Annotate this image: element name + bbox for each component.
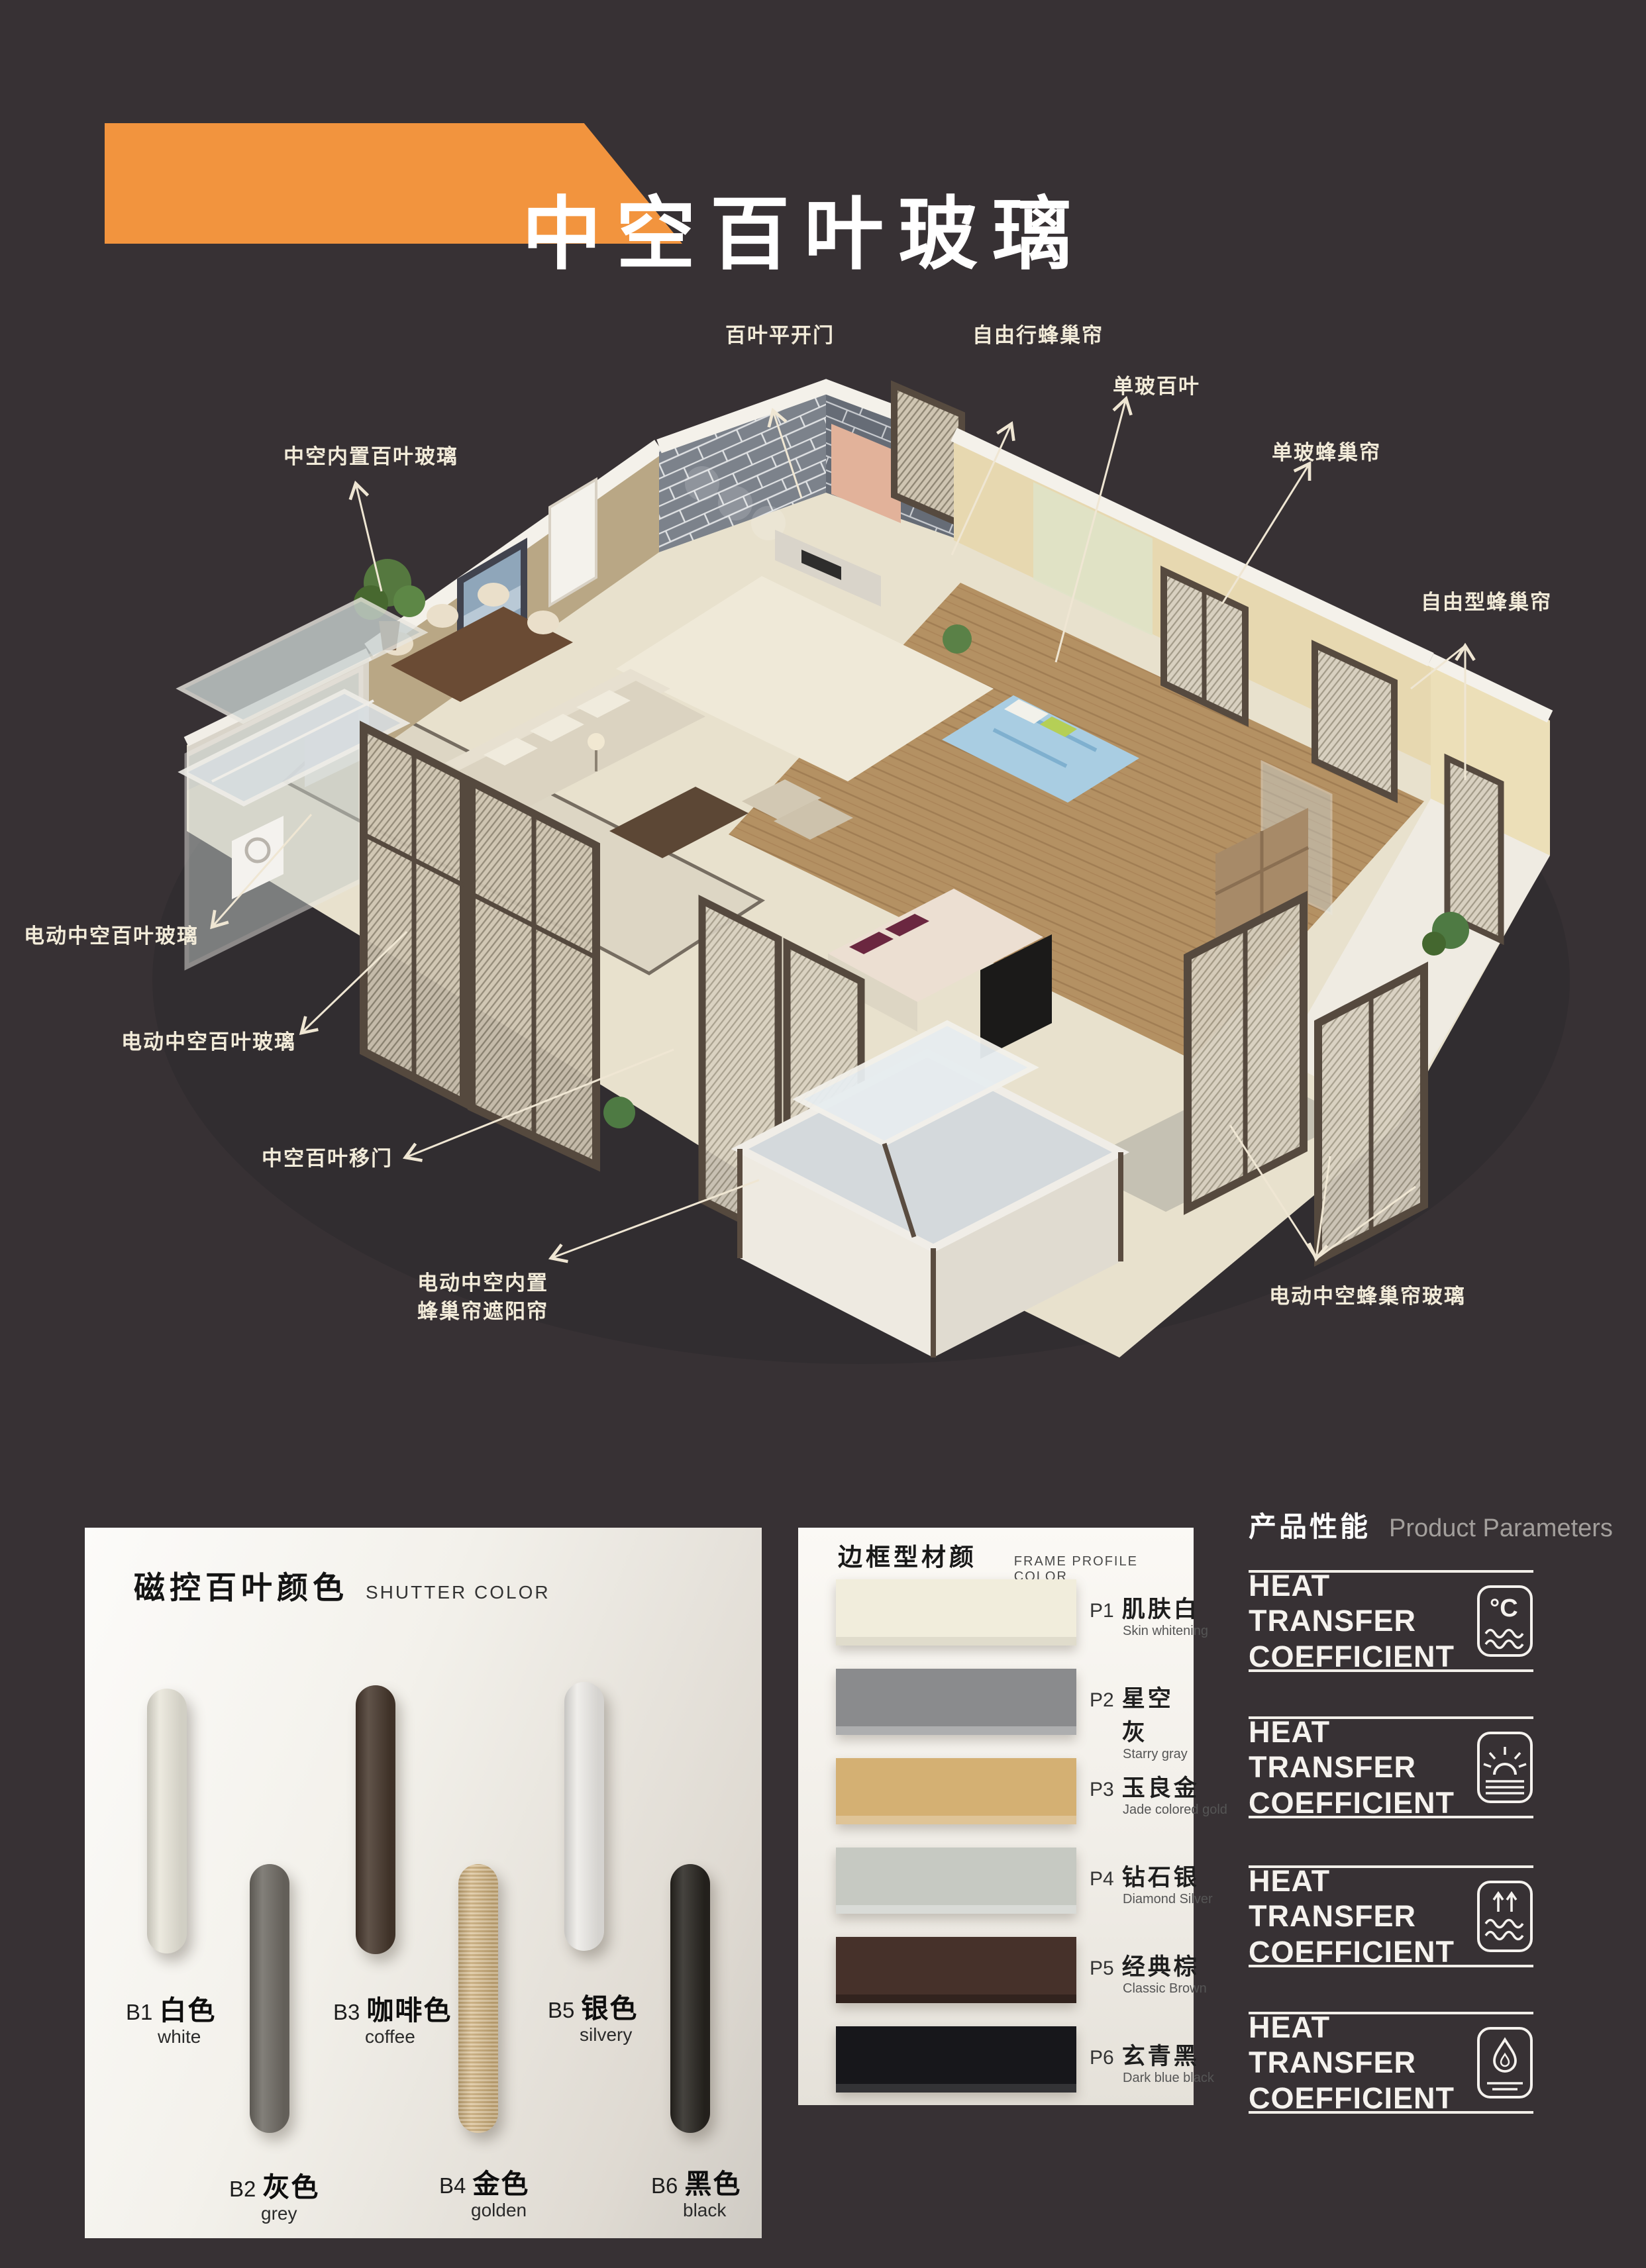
swatch-name-en: coffee — [365, 2026, 452, 2047]
param-row-3: HEAT TRANSFER COEFFICIENT — [1249, 1865, 1533, 1967]
frame-label-p5: P5经典棕 Classic Brown — [1090, 1948, 1207, 1997]
frame-profile-color-panel: 边框型材颜色 FRAME PROFILE COLOR P1肌肤白 Skin wh… — [798, 1528, 1194, 2105]
callout-line-2: 蜂巢帘遮阳帘 — [417, 1297, 548, 1326]
param-row-2: HEAT TRANSFER COEFFICIENT — [1249, 1716, 1533, 1818]
swatch-name-zh: 星空灰 — [1122, 1680, 1194, 1748]
frame-label-p2: P2星空灰 Starry gray — [1090, 1680, 1194, 1762]
param-label-line2: COEFFICIENT — [1249, 2081, 1476, 2116]
callout-single-glass-louver: 单玻百叶 — [1113, 372, 1200, 401]
shutter-label-b5: B5银色 silvery — [548, 1986, 638, 2046]
frame-bar-p6 — [836, 2026, 1076, 2093]
shutter-label-b6: B6黑色 black — [651, 2161, 741, 2221]
swatch-code: P1 — [1090, 1600, 1114, 1622]
param-label-line2: COEFFICIENT — [1249, 1934, 1476, 1969]
shutter-slat-b2 — [250, 1864, 289, 2133]
product-parameters-header: 产品性能 Product Parameters — [1249, 1504, 1613, 1545]
param-row-1: HEAT TRANSFER COEFFICIENT °C — [1249, 1570, 1533, 1672]
water-drop-icon — [1476, 2026, 1533, 2099]
param-row-4: HEAT TRANSFER COEFFICIENT — [1249, 2012, 1533, 2114]
shutter-color-panel: 磁控百叶颜色 SHUTTER COLOR B1白色 white B2灰色 gre… — [85, 1528, 762, 2238]
shutter-label-b1: B1白色 white — [126, 1988, 216, 2047]
param-label: HEAT TRANSFER COEFFICIENT — [1249, 1568, 1476, 1673]
params-title-zh: 产品性能 — [1249, 1504, 1370, 1545]
swatch-code: B4 — [439, 2173, 466, 2198]
swatch-code: B5 — [548, 1998, 574, 2023]
frame-bar-p1 — [836, 1579, 1076, 1646]
sun-horizon-icon — [1476, 1731, 1533, 1804]
swatch-name-en: white — [158, 2026, 216, 2047]
param-label-line1: HEAT TRANSFER — [1249, 1863, 1476, 1934]
shutter-slat-b1 — [147, 1689, 187, 1953]
swatch-name-zh: 白色 — [159, 1988, 216, 2028]
svg-text:°C: °C — [1490, 1595, 1518, 1622]
swatch-name-zh: 黑色 — [684, 2161, 741, 2201]
celsius-waves-icon: °C — [1476, 1585, 1533, 1657]
shutter-label-b2: B2灰色 grey — [229, 2165, 319, 2224]
swatch-name-en: black — [683, 2200, 741, 2221]
param-label-line1: HEAT TRANSFER — [1249, 2010, 1476, 2080]
param-label-line1: HEAT TRANSFER — [1249, 1714, 1476, 1785]
swatch-name-en: Classic Brown — [1123, 1981, 1207, 1997]
shutter-slat-b5 — [564, 1682, 604, 1951]
swatch-code: B3 — [333, 2000, 360, 2025]
swatch-code: P5 — [1090, 1957, 1114, 1980]
frame-label-p4: P4钻石银 Diamond Silver — [1090, 1859, 1213, 1907]
frame-label-p1: P1肌肤白 Skin whitening — [1090, 1591, 1208, 1639]
swatch-code: B1 — [126, 2000, 152, 2025]
swatch-name-en: Diamond Silver — [1123, 1892, 1213, 1907]
swatch-code: P3 — [1090, 1779, 1114, 1801]
callout-insulated-builtin-louver: 中空内置百叶玻璃 — [283, 442, 458, 471]
frame-bar-p5 — [836, 1937, 1076, 2003]
arrows-waves-icon — [1476, 1880, 1533, 1953]
shutter-slat-b6 — [670, 1864, 710, 2133]
swatch-name-zh: 银色 — [581, 1986, 638, 2026]
shutter-title-zh: 磁控百叶颜色 — [134, 1562, 348, 1608]
callout-motor-builtin-honeycomb-shade: 电动中空内置 蜂巢帘遮阳帘 — [417, 1269, 548, 1326]
param-label-line2: COEFFICIENT — [1249, 1639, 1476, 1674]
swatch-name-en: Skin whitening — [1123, 1624, 1208, 1639]
frame-bar-p4 — [836, 1848, 1076, 1914]
swatch-code: P2 — [1090, 1689, 1114, 1712]
swatch-name-zh: 玉良金 — [1122, 1769, 1200, 1803]
frame-label-p3: P3玉良金 Jade colored gold — [1090, 1769, 1227, 1818]
shutter-label-b3: B3咖啡色 coffee — [333, 1988, 452, 2047]
param-label-line1: HEAT TRANSFER — [1249, 1568, 1476, 1638]
swatch-code: P4 — [1090, 1868, 1114, 1891]
params-title-en: Product Parameters — [1389, 1514, 1613, 1543]
swatch-name-en: Jade colored gold — [1123, 1802, 1227, 1818]
frame-label-p6: P6玄青黑 Dark blue black — [1090, 2038, 1214, 2086]
callout-insulated-louver-sliding-door: 中空百叶移门 — [262, 1144, 393, 1173]
frame-bar-p2 — [836, 1669, 1076, 1735]
swatch-name-zh: 经典棕 — [1122, 1948, 1200, 1982]
param-label: HEAT TRANSFER COEFFICIENT — [1249, 2010, 1476, 2115]
callout-louver-swing-door: 百叶平开门 — [725, 321, 835, 350]
shutter-title-en: SHUTTER COLOR — [366, 1582, 550, 1603]
callout-line-1: 电动中空内置 — [417, 1269, 548, 1297]
param-label-line2: COEFFICIENT — [1249, 1785, 1476, 1820]
swatch-name-zh: 灰色 — [262, 2165, 319, 2204]
callout-motor-insulated-louver-1: 电动中空百叶玻璃 — [24, 922, 199, 950]
callout-single-glass-honeycomb: 单玻蜂巢帘 — [1272, 438, 1381, 467]
shutter-panel-title: 磁控百叶颜色 SHUTTER COLOR — [134, 1562, 550, 1608]
shutter-slat-b3 — [356, 1685, 395, 1954]
callout-motor-insulated-louver-2: 电动中空百叶玻璃 — [121, 1028, 296, 1056]
callout-motor-honeycomb-glass: 电动中空蜂巢帘玻璃 — [1269, 1282, 1466, 1310]
shutter-label-b4: B4金色 golden — [439, 2161, 529, 2221]
swatch-name-zh: 肌肤白 — [1122, 1591, 1200, 1624]
swatch-name-zh: 钻石银 — [1122, 1859, 1200, 1893]
frame-bar-p3 — [836, 1758, 1076, 1824]
param-label: HEAT TRANSFER COEFFICIENT — [1249, 1863, 1476, 1969]
swatch-name-zh: 咖啡色 — [366, 1988, 452, 2028]
shutter-slat-b4 — [458, 1864, 498, 2133]
swatch-name-en: grey — [261, 2203, 319, 2224]
swatch-name-en: Starry gray — [1123, 1747, 1194, 1762]
swatch-name-en: Dark blue black — [1123, 2071, 1214, 2086]
swatch-code: P6 — [1090, 2047, 1114, 2069]
swatch-name-zh: 玄青黑 — [1122, 2038, 1200, 2071]
swatch-name-en: golden — [471, 2200, 529, 2221]
param-label: HEAT TRANSFER COEFFICIENT — [1249, 1714, 1476, 1820]
swatch-code: B2 — [229, 2177, 256, 2202]
swatch-code: B6 — [651, 2173, 678, 2198]
callout-free-run-honeycomb: 自由行蜂巢帘 — [972, 321, 1104, 350]
callout-free-type-honeycomb: 自由型蜂巢帘 — [1421, 588, 1552, 616]
swatch-name-en: silvery — [580, 2024, 638, 2046]
swatch-name-zh: 金色 — [472, 2161, 529, 2201]
